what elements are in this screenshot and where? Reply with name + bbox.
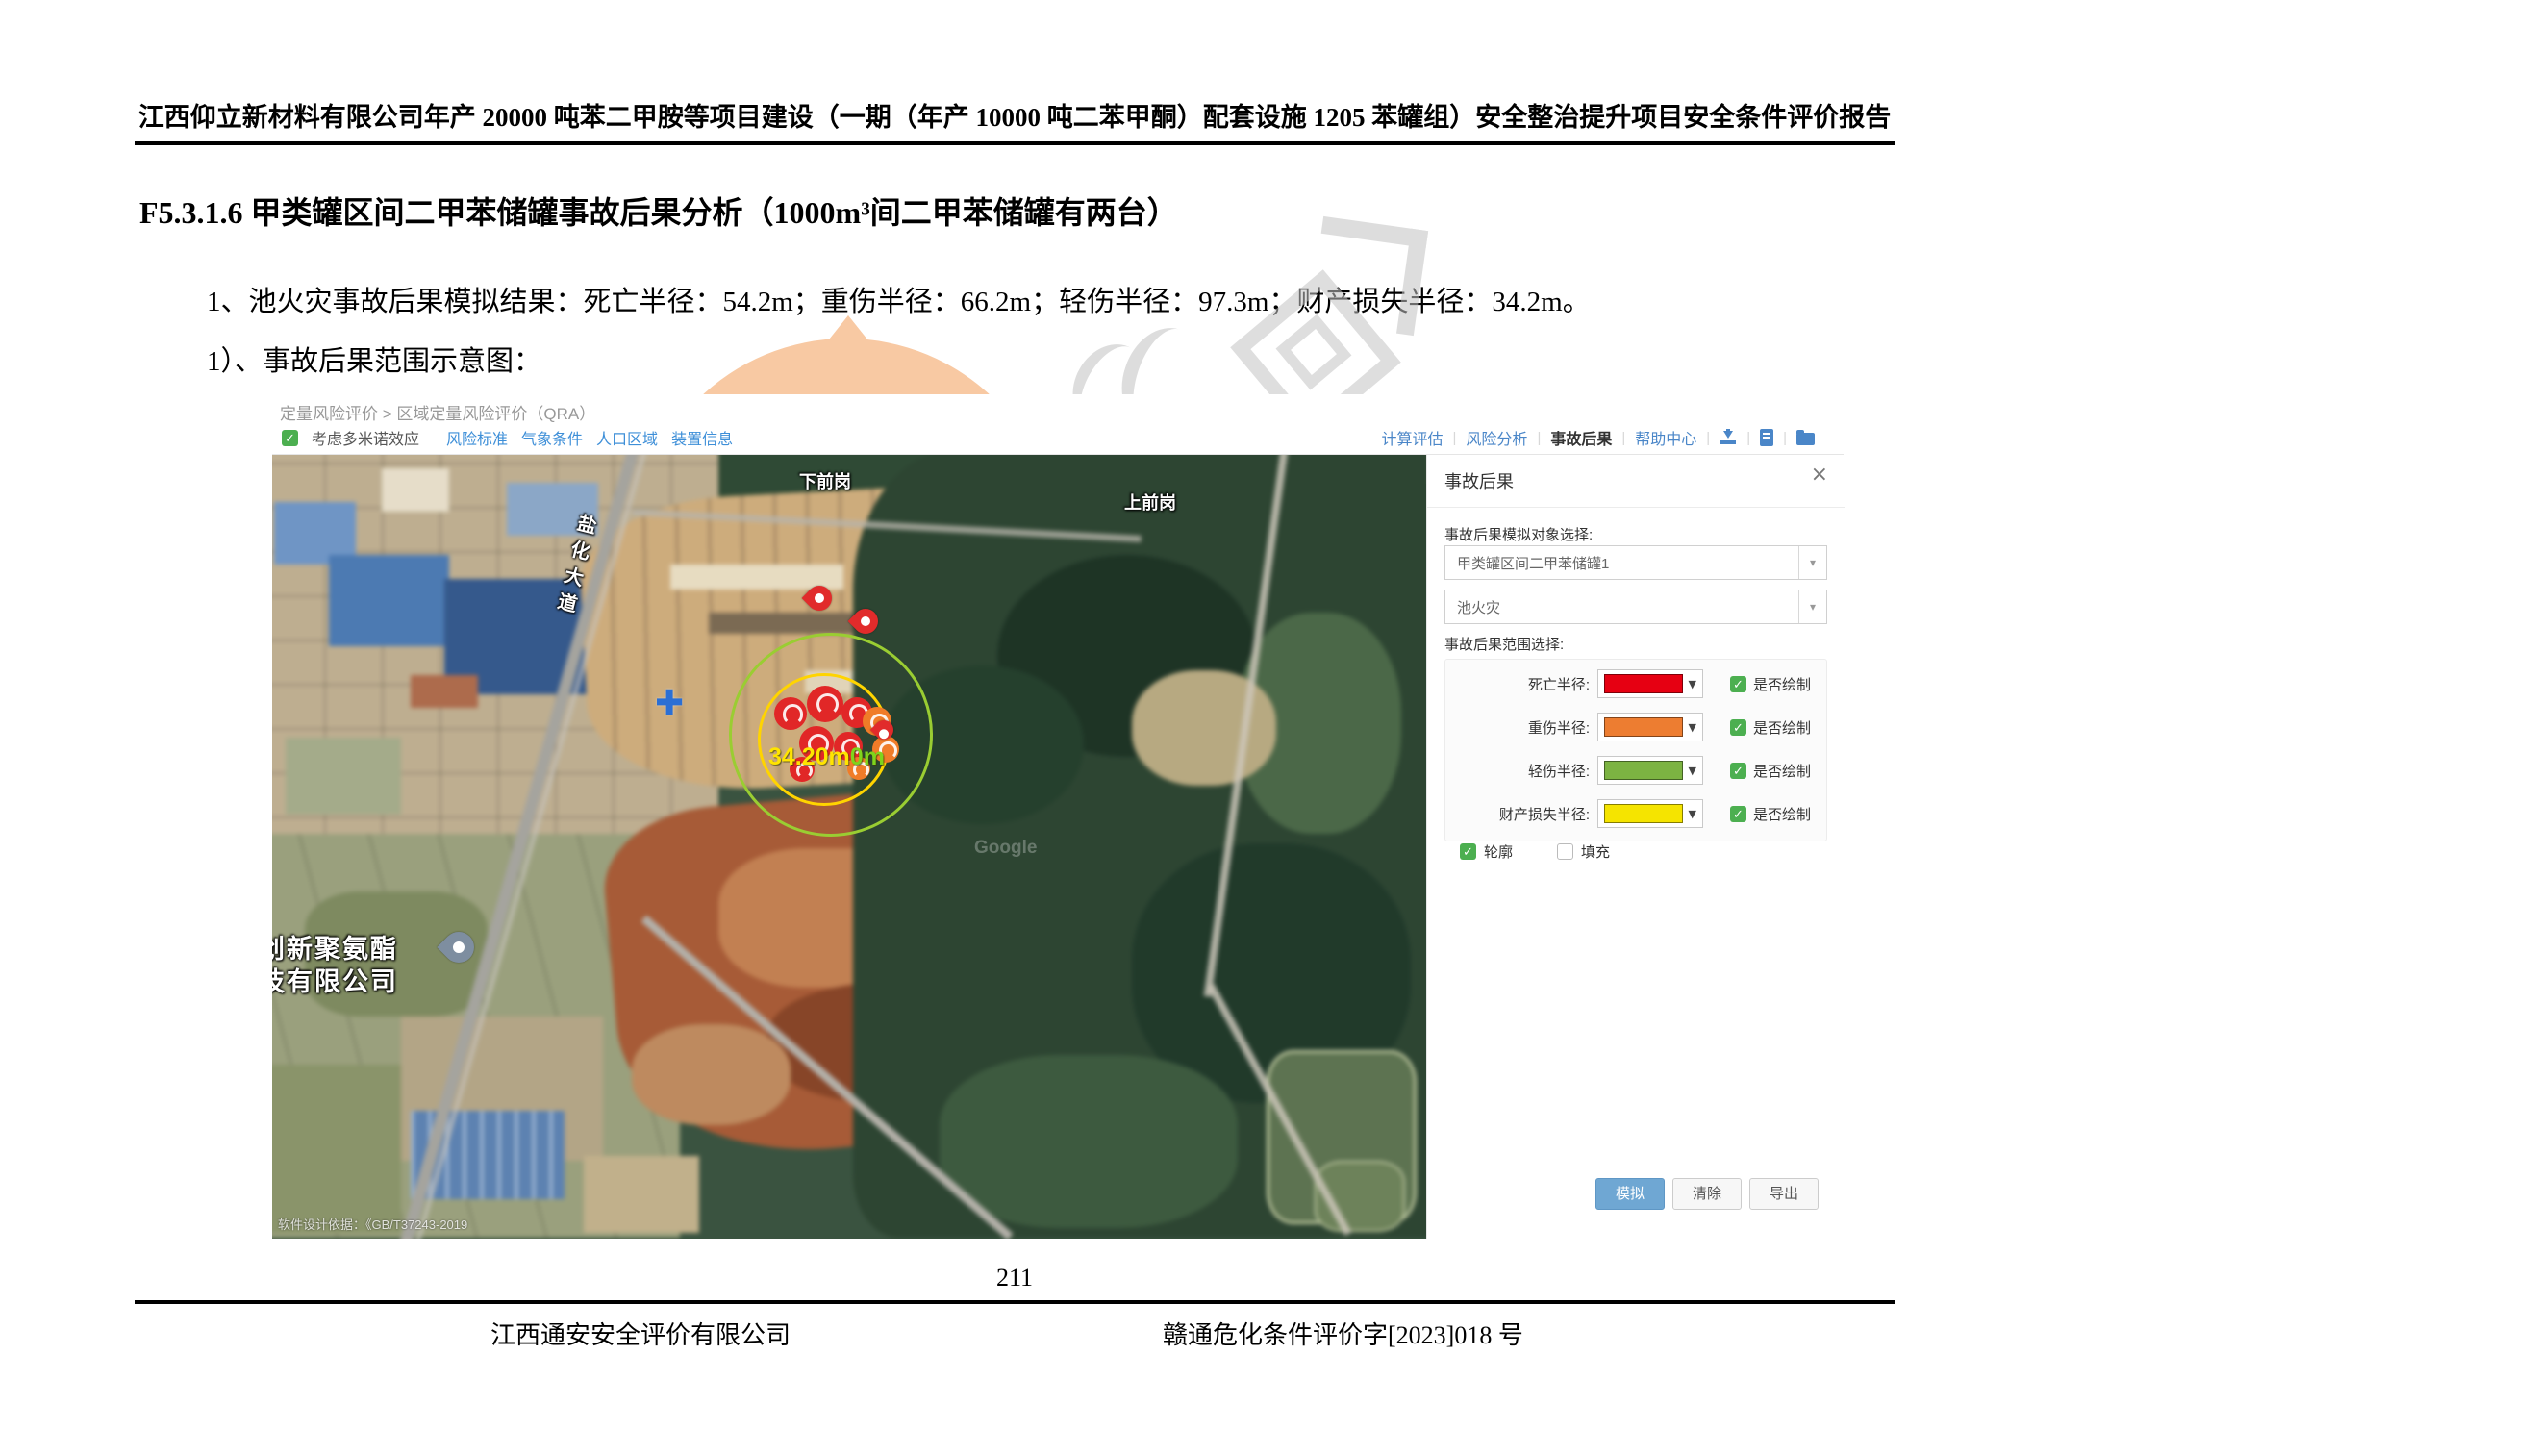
action-risk-analysis[interactable]: 风险分析 (1466, 426, 1527, 449)
separator: | (1621, 430, 1625, 446)
object-select[interactable]: 甲类罐区间二甲苯储罐1 ▾ (1444, 545, 1827, 580)
separator: | (1783, 430, 1787, 446)
separator: | (1706, 430, 1710, 446)
footer-company: 江西通安安全评价有限公司 (490, 1316, 791, 1351)
map-pin-tank2[interactable] (848, 604, 884, 640)
death-draw-checkbox[interactable]: ✓ (1730, 676, 1746, 692)
document-header-title: 江西仰立新材料有限公司年产 20000 吨苯二甲胺等项目建设（一期（年产 100… (135, 96, 1895, 134)
caret-down-icon: ▼ (1689, 721, 1696, 734)
section-heading: F5.3.1.6 甲类罐区间二甲苯储罐事故后果分析（1000m³间二甲苯储罐有两… (139, 188, 1178, 233)
severe-injury-radius-label: 重伤半径: (1445, 717, 1590, 738)
measure-label: 34.20m0m (768, 743, 885, 771)
map-pin-tank1[interactable] (802, 581, 838, 616)
action-calc-evaluate[interactable]: 计算评估 (1382, 426, 1444, 449)
property-loss-color-select[interactable]: ▼ (1597, 799, 1703, 828)
map-label-company: 创新聚氨酯 技有限公司 (272, 934, 398, 999)
link-equipment[interactable]: 装置信息 (671, 426, 733, 449)
panel-button-row: 模拟 清除 导出 (1427, 1178, 1845, 1211)
breadcrumb: 定量风险评价 > 区域定量风险评价（QRA） (280, 400, 595, 424)
caret-down-icon: ▼ (1689, 765, 1696, 777)
domino-checkbox[interactable]: ✓ (282, 430, 298, 446)
draw-label: 是否绘制 (1753, 804, 1811, 824)
map-label-road: 盐化大道 (548, 511, 601, 622)
death-radius-label: 死亡半径: (1445, 674, 1590, 694)
action-help-center[interactable]: 帮助中心 (1635, 426, 1696, 449)
death-radius-color-select[interactable]: ▼ (1597, 669, 1703, 698)
range-select-label: 事故后果范围选择: (1444, 634, 1564, 654)
object-select-value: 甲类罐区间二甲苯储罐1 (1445, 553, 1798, 573)
light-injury-color-select[interactable]: ▼ (1597, 756, 1703, 785)
property-loss-draw-checkbox[interactable]: ✓ (1730, 806, 1746, 822)
action-accident-consequence[interactable]: 事故后果 (1550, 426, 1612, 449)
map-label-village-top: 下前岗 (799, 468, 851, 493)
imagery-credit: Google (974, 838, 1037, 859)
folder-icon[interactable] (1796, 433, 1815, 445)
light-injury-radius-label: 轻伤半径: (1445, 761, 1590, 781)
report-page: 江西仰立新材料有限公司年产 20000 吨苯二甲胺等项目建设（一期（年产 100… (0, 0, 2536, 1456)
color-swatch (1604, 674, 1683, 693)
draw-label: 是否绘制 (1753, 674, 1811, 694)
outline-checkbox[interactable]: ✓ (1460, 843, 1476, 860)
caret-down-icon: ▼ (1689, 808, 1696, 820)
caret-down-icon: ▼ (1689, 678, 1696, 690)
export-button[interactable]: 导出 (1749, 1178, 1819, 1210)
severe-injury-draw-checkbox[interactable]: ✓ (1730, 719, 1746, 736)
scenario-select[interactable]: 池火灾 ▾ (1444, 590, 1827, 624)
domino-checkbox-label: 考虑多米诺效应 (312, 426, 419, 449)
color-swatch (1604, 761, 1683, 780)
property-loss-radius-label: 财产损失半径: (1445, 804, 1590, 824)
close-icon[interactable]: × (1811, 463, 1828, 487)
figure-caption: 1）、事故后果范围示意图： (207, 339, 541, 379)
map-label-village-right: 上前岗 (1124, 490, 1176, 515)
chevron-down-icon[interactable]: ▾ (1798, 546, 1826, 579)
panel-divider (1427, 507, 1845, 508)
map-copyright: 软件设计依据：《GB/T37243-2019 (278, 1215, 467, 1233)
company-label-line2: 技有限公司 (272, 966, 398, 999)
header-rule (135, 141, 1895, 145)
property-loss-radius-row: 财产损失半径: ▼ ✓ 是否绘制 (1445, 799, 1826, 828)
link-population[interactable]: 人口区域 (596, 426, 658, 449)
clear-button[interactable]: 清除 (1672, 1178, 1742, 1210)
severe-injury-color-select[interactable]: ▼ (1597, 713, 1703, 741)
draw-label: 是否绘制 (1753, 761, 1811, 781)
radius-options-group: 死亡半径: ▼ ✓ 是否绘制 重伤半径: ▼ ✓ 是否绘制 (1444, 659, 1827, 841)
footer-rule (135, 1300, 1895, 1304)
link-risk-standard[interactable]: 风险标准 (446, 426, 508, 449)
outline-label: 轮廓 (1484, 841, 1513, 862)
top-action-bar: 计算评估 | 风险分析 | 事故后果 | 帮助中心 | | | (1382, 426, 1816, 449)
page-number: 211 (135, 1264, 1895, 1293)
file-icon[interactable] (1760, 429, 1773, 446)
link-weather[interactable]: 气象条件 (521, 426, 583, 449)
map-pin-company[interactable] (437, 925, 480, 968)
scenario-select-value: 池火灾 (1445, 597, 1798, 617)
footer-doc-number: 赣通危化条件评价字[2023]018 号 (1163, 1316, 1523, 1351)
measure-value-yellow: 34.20m (768, 743, 850, 770)
outline-fill-row: ✓ 轮廓 填充 (1460, 841, 1610, 862)
death-radius-row: 死亡半径: ▼ ✓ 是否绘制 (1445, 669, 1826, 698)
crosshair-cursor: ✚ (655, 684, 684, 723)
chevron-down-icon[interactable]: ▾ (1798, 590, 1826, 623)
separator: | (1537, 430, 1541, 446)
object-select-label: 事故后果模拟对象选择: (1444, 524, 1593, 544)
separator: | (1746, 430, 1750, 446)
color-swatch (1604, 717, 1683, 737)
options-bar: ✓ 考虑多米诺效应 风险标准 气象条件 人口区域 装置信息 (282, 426, 733, 449)
satellite-map[interactable]: 下前岗 上前岗 盐化大道 创新聚氨酯 技有限公司 ✚ (272, 455, 1426, 1239)
simulate-button[interactable]: 模拟 (1595, 1178, 1665, 1210)
panel-title: 事故后果 (1444, 468, 1514, 493)
fill-checkbox[interactable] (1557, 843, 1573, 860)
result-paragraph: 1、池火灾事故后果模拟结果：死亡半径：54.2m；重伤半径：66.2m；轻伤半径… (207, 279, 1899, 319)
download-icon[interactable] (1720, 429, 1737, 446)
separator: | (1453, 430, 1457, 446)
accident-consequence-panel: 事故后果 × 事故后果模拟对象选择: 甲类罐区间二甲苯储罐1 ▾ 池火灾 ▾ 事… (1426, 455, 1844, 1239)
qra-app-screenshot: 定量风险评价 > 区域定量风险评价（QRA） ✓ 考虑多米诺效应 风险标准 气象… (272, 394, 1844, 1239)
color-swatch (1604, 804, 1683, 823)
severe-injury-radius-row: 重伤半径: ▼ ✓ 是否绘制 (1445, 713, 1826, 741)
fill-label: 填充 (1581, 841, 1610, 862)
map-overlay: 下前岗 上前岗 盐化大道 创新聚氨酯 技有限公司 ✚ (272, 455, 1426, 1239)
draw-label: 是否绘制 (1753, 717, 1811, 738)
measure-value-green: 0m (850, 743, 885, 770)
light-injury-draw-checkbox[interactable]: ✓ (1730, 763, 1746, 779)
company-label-line1: 创新聚氨酯 (272, 934, 398, 966)
light-injury-radius-row: 轻伤半径: ▼ ✓ 是否绘制 (1445, 756, 1826, 785)
